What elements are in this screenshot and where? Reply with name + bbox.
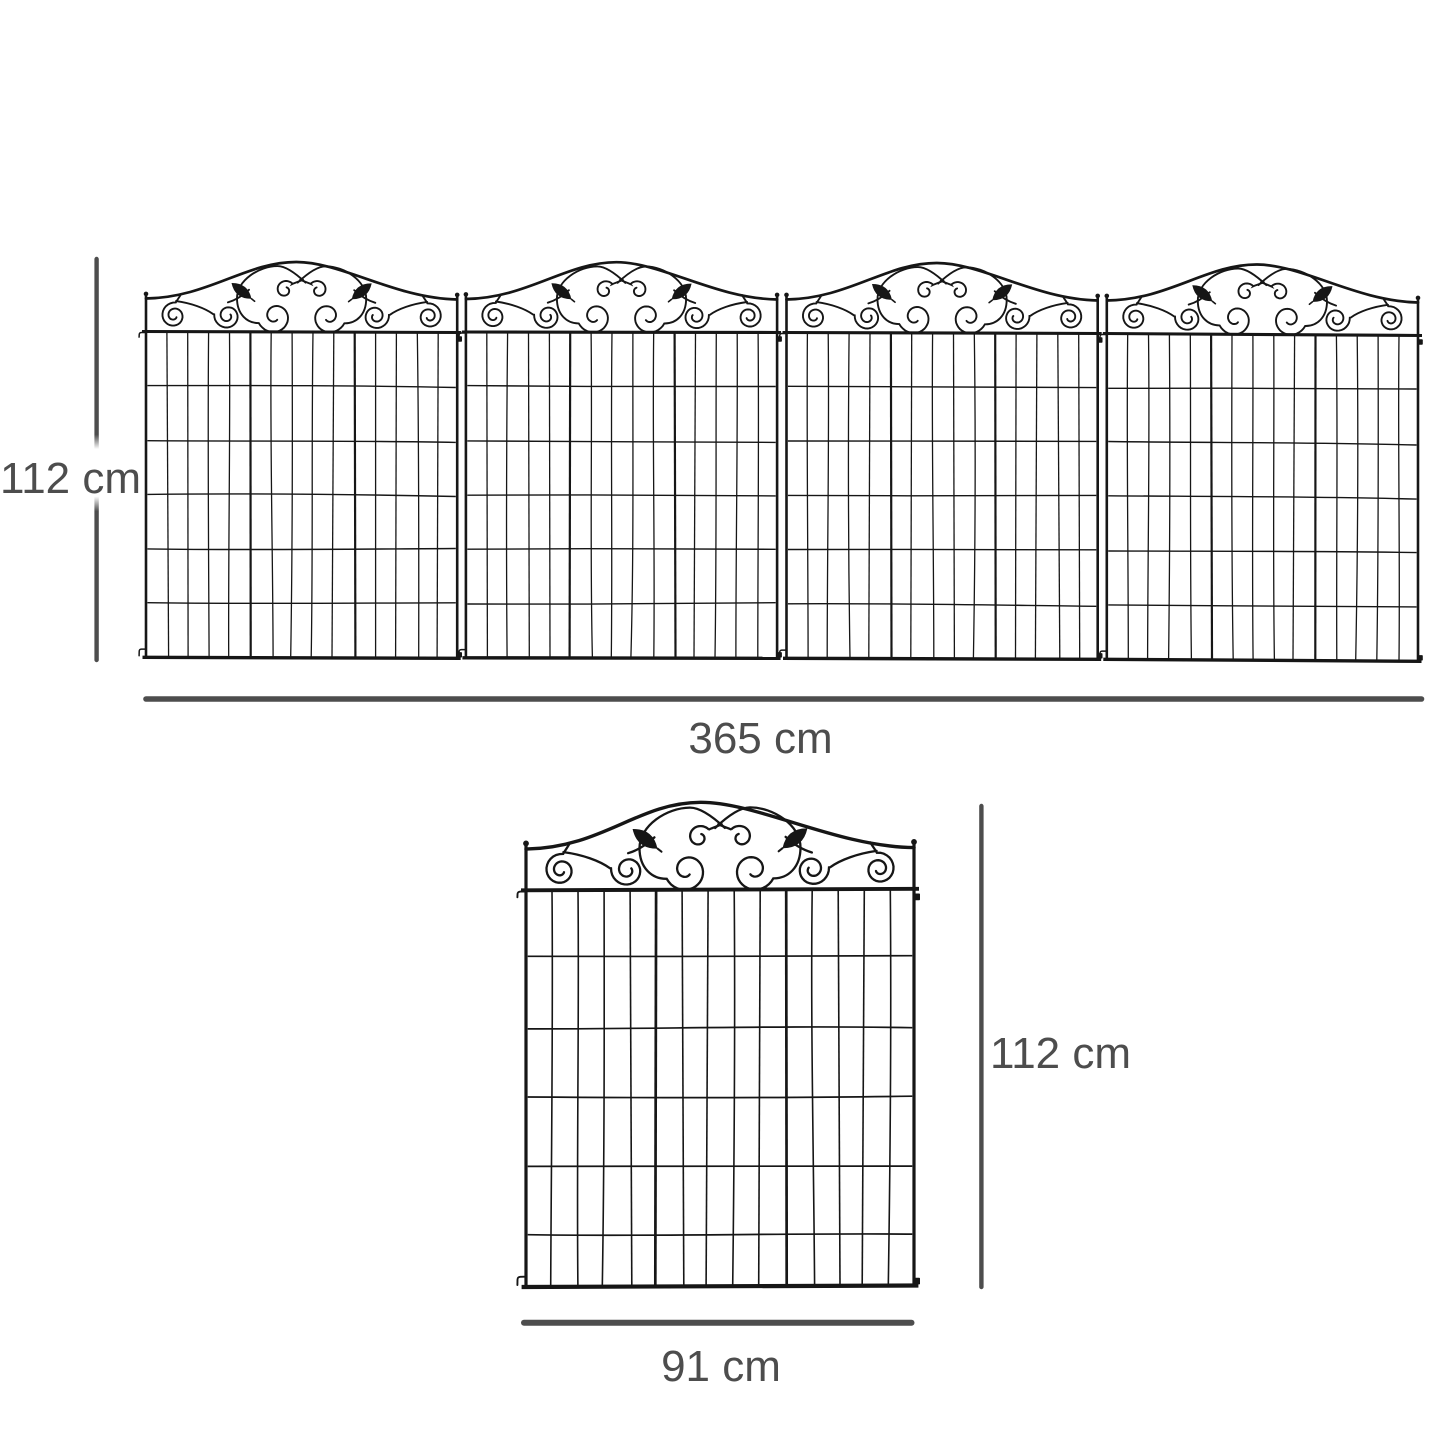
svg-text:112 cm: 112 cm bbox=[0, 454, 141, 503]
svg-text:365 cm: 365 cm bbox=[688, 714, 832, 763]
svg-text:112 cm: 112 cm bbox=[990, 1029, 1131, 1078]
svg-text:91 cm: 91 cm bbox=[661, 1342, 781, 1391]
